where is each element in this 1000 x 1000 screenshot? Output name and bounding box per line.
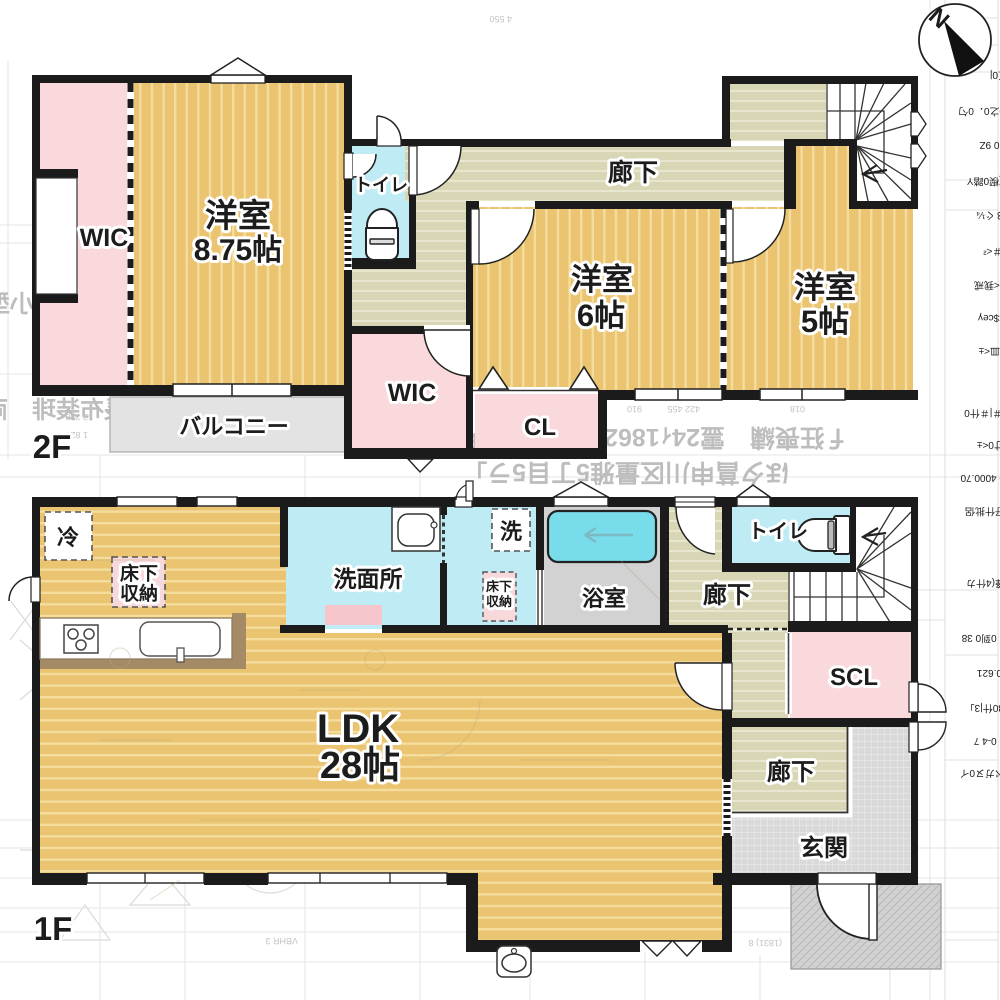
- svg-text:廊下: 廊下: [703, 582, 751, 609]
- svg-text:ち6 0-4 7: ち6 0-4 7: [973, 735, 1000, 746]
- svg-text:ほ夕菖申川区量雅5丁目5ラ｣: ほ夕菖申川区量雅5丁目5ラ｣: [475, 458, 790, 486]
- svg-text:玄関: 玄関: [800, 835, 848, 862]
- svg-text:1080什|3｣: 1080什|3｣: [970, 702, 1000, 714]
- svg-text:湘0之0．0勺: 湘0之0．0勺: [958, 105, 1000, 117]
- svg-text:収納: 収納: [486, 594, 512, 609]
- svg-text:廊下: 廊下: [608, 159, 658, 187]
- svg-text:叵|(楔0踏Y: 叵|(楔0踏Y: [967, 175, 1000, 187]
- svg-text:1F: 1F: [34, 910, 73, 947]
- svg-text:|止|<我戒: |止|<我戒: [974, 279, 1000, 291]
- svg-text:＞<$ceγ: ＞<$ceγ: [978, 312, 1000, 323]
- svg-text:2F: 2F: [33, 428, 72, 465]
- svg-text:床下: 床下: [486, 579, 512, 594]
- svg-text:2 330: 2 330: [65, 412, 88, 422]
- svg-text:28帖: 28帖: [320, 745, 400, 787]
- svg-text:WIC: WIC: [80, 224, 129, 252]
- svg-text:竹0 4000.70: 竹0 4000.70: [960, 472, 1000, 484]
- svg-text:(1831) 8: (1831) 8: [748, 938, 782, 948]
- svg-text:WIC: WIC: [388, 379, 437, 407]
- svg-text:台0.621: 台0.621: [977, 667, 1000, 679]
- svg-text:洋室: 洋室: [794, 270, 856, 305]
- svg-text:トイレ: トイレ: [354, 175, 408, 195]
- svg-text:トイレ: トイレ: [748, 521, 808, 543]
- svg-text:洋室: 洋室: [205, 197, 271, 234]
- svg-text:422 455: 422 455: [667, 404, 700, 414]
- svg-text:プペガヌ0イ: プペガヌ0イ: [959, 767, 1000, 779]
- svg-text:浴室: 浴室: [582, 586, 626, 611]
- svg-text:6帖: 6帖: [577, 298, 625, 333]
- svg-text:窓|＃<²: 窓|＃<²: [983, 245, 1000, 257]
- svg-text:で3 0到0 38: で3 0到0 38: [961, 632, 1000, 644]
- svg-text:廊下: 廊下: [767, 759, 815, 786]
- svg-text:910: 910: [627, 404, 642, 414]
- svg-text:長布装琲 両上: 長布装琲 両上: [0, 397, 128, 424]
- svg-text:ｦ六皿<±: ｦ六皿<±: [978, 345, 1000, 357]
- svg-text:バルコニー: バルコニー: [179, 414, 289, 439]
- svg-text:SCL: SCL: [830, 664, 878, 691]
- svg-text:叵好什批侶: 叵好什批侶: [965, 505, 1000, 517]
- svg-text:子３ぐ¼: 子３ぐ¼: [976, 209, 1000, 221]
- svg-text:018: 018: [790, 404, 805, 414]
- svg-text:8.75帖: 8.75帖: [194, 234, 282, 267]
- svg-text:什|＃|＃什0: 什|＃|＃什0: [964, 407, 1000, 419]
- svg-text:収納: 収納: [120, 583, 158, 605]
- svg-text:05寸0<±: 05寸0<±: [976, 439, 1000, 451]
- svg-text:洋室: 洋室: [571, 262, 633, 297]
- svg-text:促峰(4什カ: 促峰(4什カ: [966, 577, 1000, 589]
- svg-text:床下: 床下: [120, 563, 158, 585]
- svg-text:叵0|: 叵0|: [990, 69, 1000, 80]
- svg-text:洗: 洗: [500, 519, 522, 544]
- svg-text:冷: 冷: [57, 525, 79, 550]
- svg-text:0更0 9Z: 0更0 9Z: [979, 139, 1000, 150]
- svg-text:4 550: 4 550: [489, 14, 512, 24]
- svg-text:CL: CL: [524, 414, 556, 441]
- svg-text:5帖: 5帖: [801, 304, 849, 339]
- svg-text:VBHR 3: VBHR 3: [265, 936, 298, 946]
- svg-text:洗面所: 洗面所: [334, 566, 403, 592]
